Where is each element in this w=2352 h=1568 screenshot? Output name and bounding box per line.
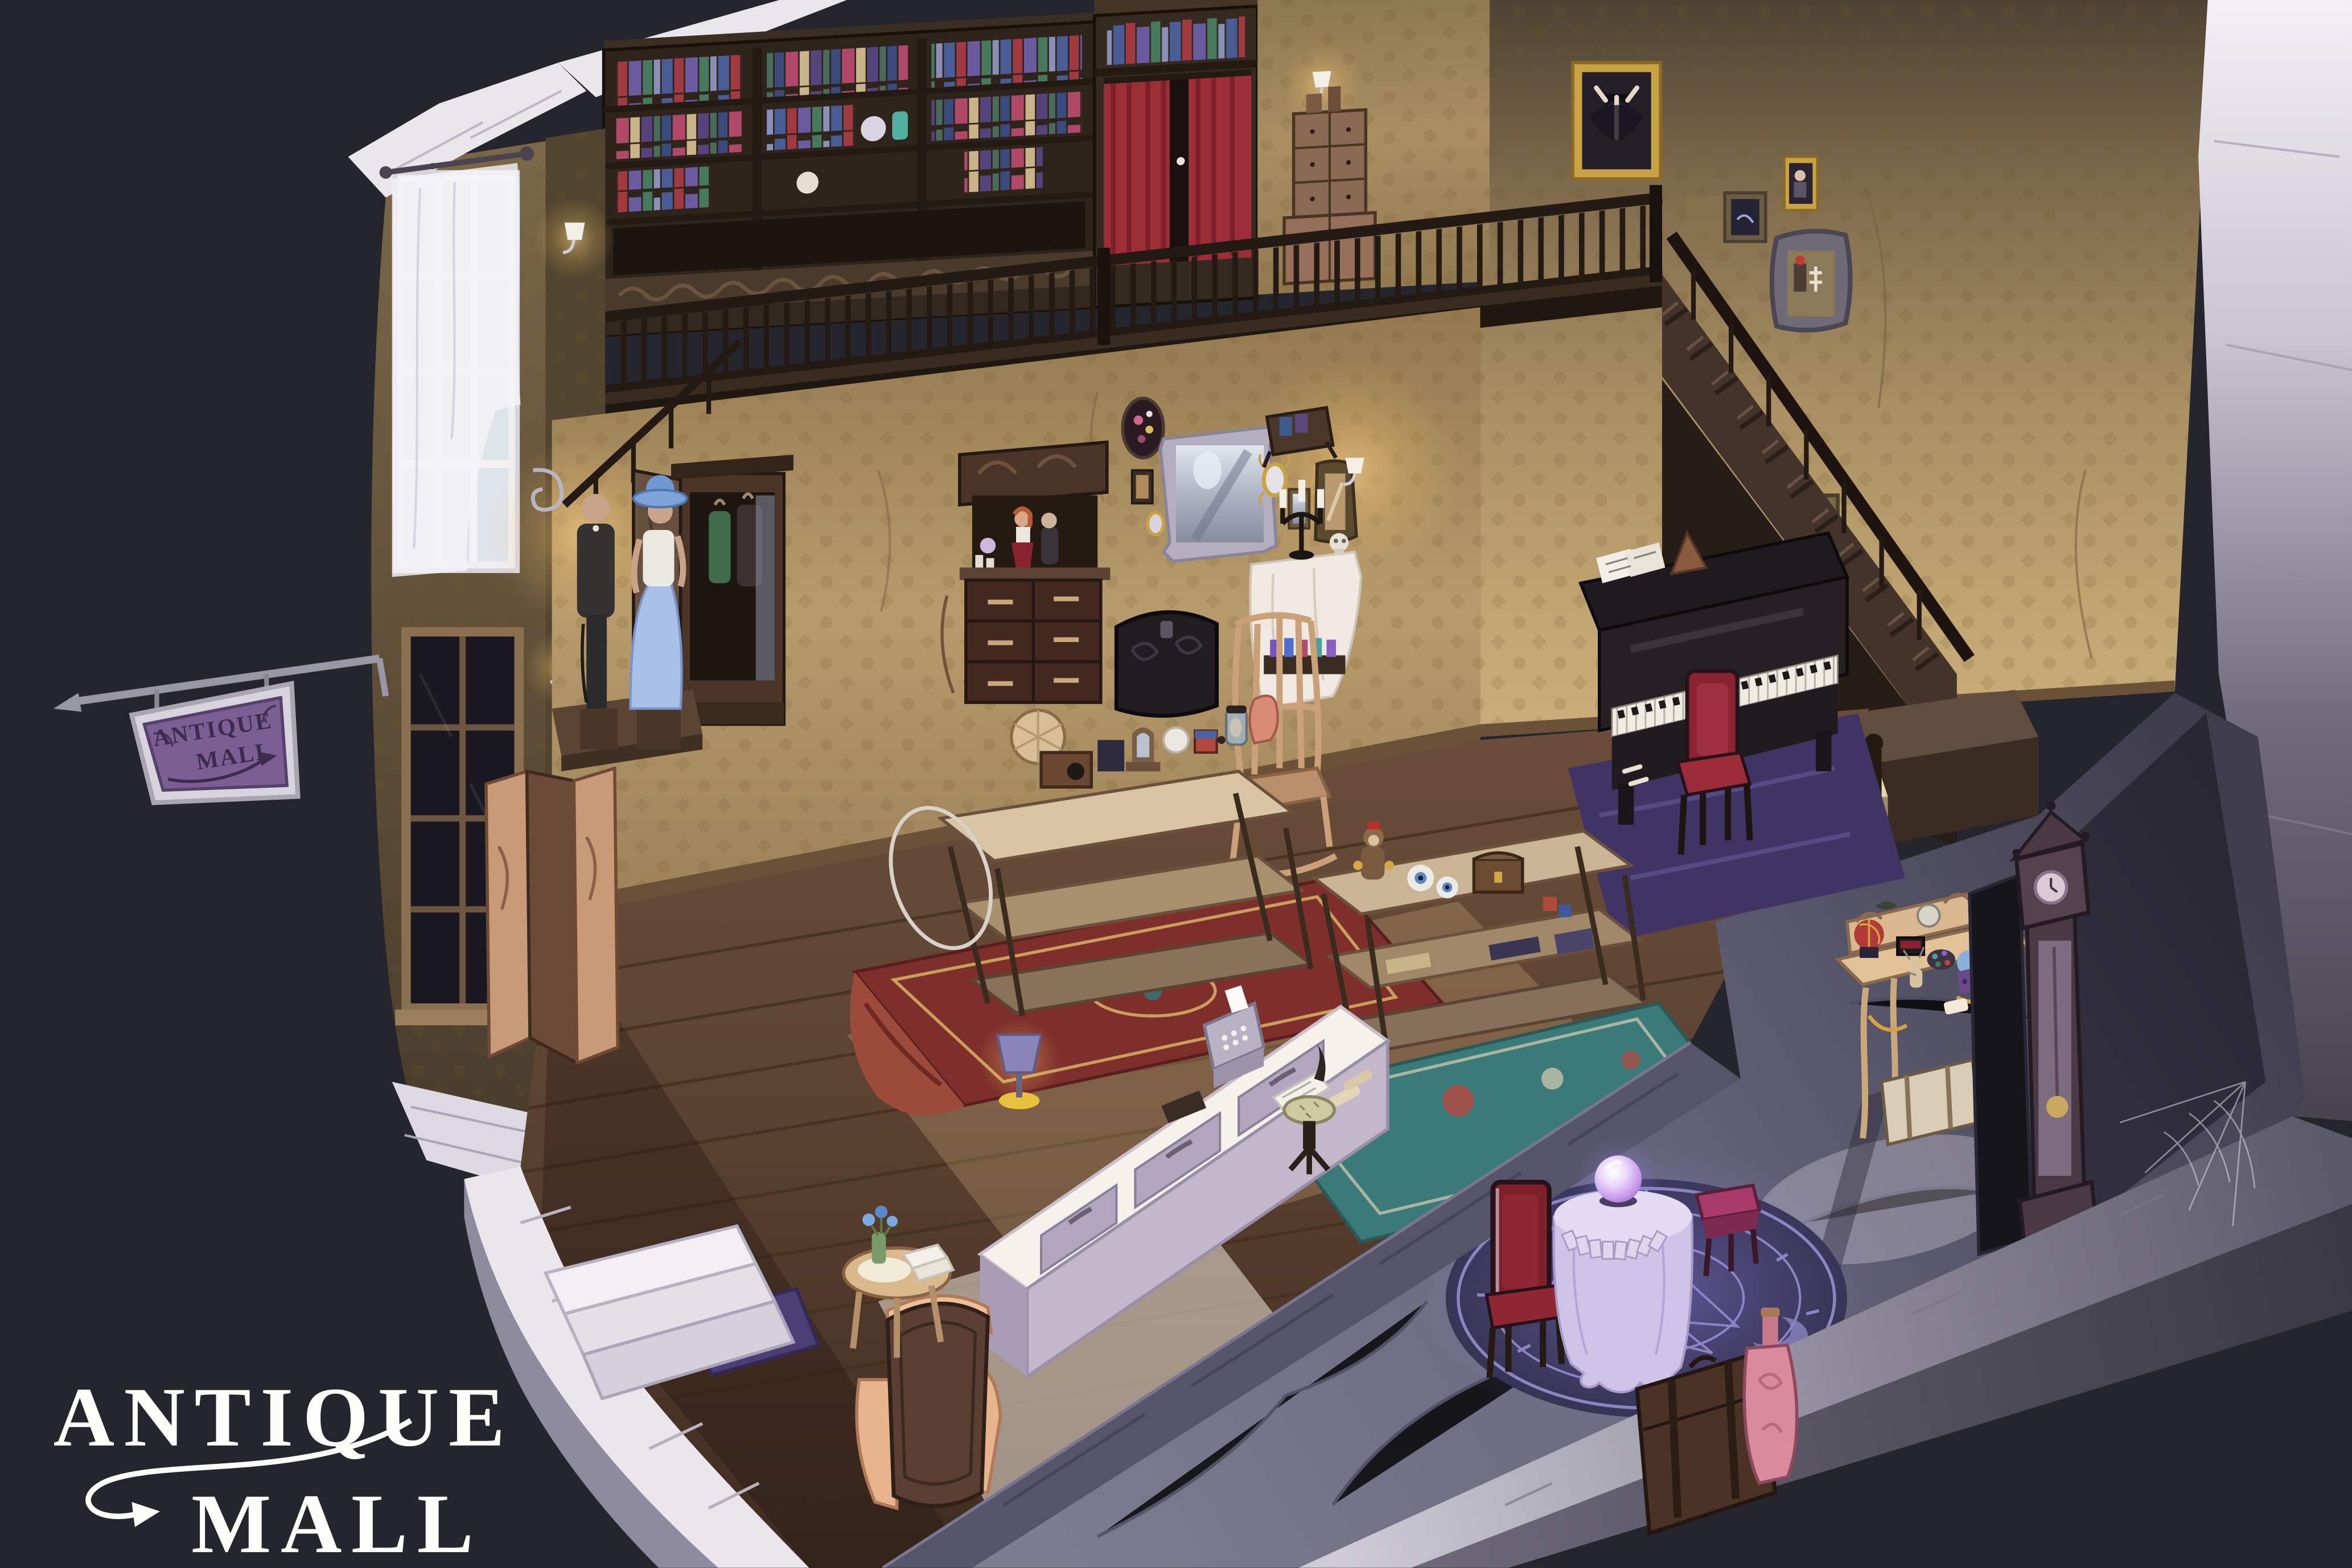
white-orb[interactable] [1163, 727, 1189, 752]
gold-oval-mirror-small[interactable] [1148, 513, 1163, 535]
toy-cube-red[interactable] [1543, 897, 1557, 911]
small-frame[interactable] [1132, 470, 1153, 503]
leaning-panel[interactable] [1969, 875, 2032, 1254]
oval-floral-painting[interactable] [1122, 398, 1163, 458]
logo-line-1: ANTIQUE [54, 1371, 515, 1464]
blue-hat-brim [634, 490, 687, 507]
toy-cube-blue[interactable] [1559, 904, 1571, 917]
dark-display-box[interactable] [1097, 740, 1124, 771]
curio-black-box[interactable] [1897, 937, 1924, 954]
mini-crystal-ball[interactable] [980, 538, 996, 554]
hutch-dresser[interactable] [942, 442, 1110, 702]
potion-bottle-shelf [892, 111, 908, 140]
coral-vase[interactable] [1249, 695, 1277, 743]
dark-doll[interactable] [1041, 513, 1058, 565]
specimen-jar[interactable] [1226, 706, 1247, 745]
ornate-skeleton-painting[interactable] [1772, 231, 1851, 330]
antique-mall-scene: ANTIQUE MALL ANTIQUE MALL [0, 0, 2352, 1568]
logo-line-2: MALL [191, 1477, 483, 1568]
missing-painting-mark [1685, 196, 1729, 258]
pendulum [2046, 1096, 2069, 1118]
black-chest[interactable] [1116, 612, 1216, 716]
crystal-ball[interactable] [1594, 1155, 1642, 1207]
bat-woman-painting[interactable] [1573, 63, 1660, 179]
folding-screen-left[interactable] [486, 768, 618, 1063]
display-plate[interactable] [1918, 904, 1940, 927]
red-curtains[interactable] [1104, 72, 1251, 266]
hanging-green-coat [709, 511, 731, 583]
paint-palette[interactable] [1927, 949, 1955, 970]
gold-portrait-painting[interactable] [1784, 157, 1818, 210]
treasure-box[interactable] [1474, 853, 1522, 892]
small-dark-painting[interactable] [1725, 193, 1766, 241]
